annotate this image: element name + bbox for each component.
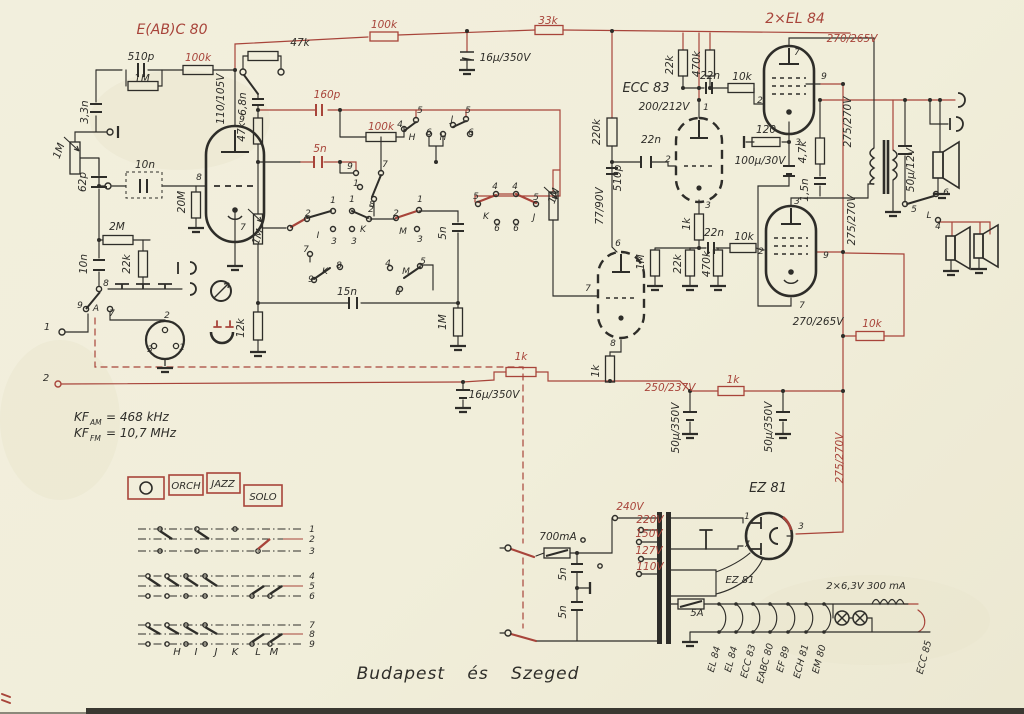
schematic-label: I [317, 231, 320, 241]
schematic-label: 220k [591, 118, 603, 145]
schematic-label: 7 [240, 223, 246, 233]
schematic-label: 1M [134, 73, 150, 85]
schematic-label: L [926, 211, 931, 221]
schematic-label: 5n [437, 226, 449, 239]
schematic-label: 8 [196, 173, 202, 183]
schematic-label: K [483, 212, 490, 222]
schematic-label: 6 [309, 592, 315, 602]
schematic-label: 1 [744, 512, 750, 522]
schematic-label: 12k [235, 317, 247, 337]
schematic-label: 2 [393, 209, 399, 219]
schematic-label: 9 [308, 275, 314, 285]
schematic-label: J [213, 647, 218, 658]
schematic-label: 16μ/350V [480, 52, 532, 64]
schematic-label: 2M [109, 221, 125, 233]
schematic-label: 1 [349, 195, 355, 205]
record-dot-icon [140, 482, 152, 494]
schematic-label: 8 [610, 339, 616, 349]
schematic-label: EABC 80 [755, 642, 776, 684]
schematic-label: K [360, 225, 367, 235]
schematic-label: 4 [309, 572, 315, 582]
schematic-label: 5n [557, 605, 569, 618]
schematic-label: 77/90V [594, 186, 606, 224]
schematic-label: 510p [612, 164, 624, 191]
schematic-label: J [531, 213, 536, 223]
schematic-label: 700mA [539, 531, 576, 543]
schematic-label: 1 [703, 103, 709, 113]
schematic-label: L [255, 647, 261, 658]
schematic-label: 220V [636, 514, 664, 526]
schematic-label: M [402, 267, 410, 277]
schematic-label: M [270, 647, 279, 658]
schematic-label: 22n [704, 227, 724, 239]
schematic-label: 6 [494, 224, 500, 234]
schematic-label: 2 [368, 205, 374, 215]
schematic-label: 1 [330, 196, 336, 206]
schematic-label: 5 [420, 257, 426, 267]
schematic-label: ECC 83 [622, 81, 669, 96]
magic-eye-symbol [211, 332, 233, 343]
tube-ecc83-upper [676, 118, 722, 202]
schematic-label: 2×EL 84 [765, 11, 825, 27]
preset-button-solo: SOLO [244, 485, 282, 506]
schematic-label: 10k [862, 318, 882, 330]
preset-button-jazz-label: JAZZ [209, 479, 236, 490]
schematic-caption: Budapest és Szeged [357, 664, 580, 684]
schematic-label: 270/265V [827, 33, 879, 45]
schematic-label: 9 [347, 162, 353, 172]
schematic-label: 9 [821, 72, 827, 82]
schematic-label: 10k [734, 231, 754, 243]
schematic-label: 4 [397, 120, 403, 130]
schematic-label: 9 [77, 301, 83, 311]
schematic-label: H [440, 133, 447, 143]
schematic-label: = 10,7 MHz [106, 426, 177, 440]
preset-button-orch: ORCH [169, 475, 203, 495]
schematic-label: 1k [590, 364, 602, 378]
schematic-label: 8 [336, 261, 342, 271]
schematic-label: 8 [103, 279, 109, 289]
schematic-label: ECC 83 [739, 643, 759, 679]
schematic-label: 62p [77, 172, 89, 192]
schematic-label: 100k [371, 19, 398, 31]
schematic-label: 1 [353, 179, 359, 189]
schematic-label: 22n [641, 134, 661, 146]
schematic-label: 7 [303, 245, 309, 255]
schematic-label: 47k [290, 37, 310, 49]
schematic-label: A [92, 304, 99, 314]
schematic-label: 20M [176, 191, 188, 213]
schematic-label: 2 [757, 96, 763, 106]
schematic-label: 3 [705, 201, 711, 211]
schematic-label: 110V [636, 561, 664, 573]
schematic-label: 110/105V [215, 73, 227, 125]
schematic-label: 9 [309, 640, 315, 650]
schematic-label: 1 [179, 343, 185, 353]
tube-ez81 [746, 513, 792, 559]
schematic-label: H [409, 133, 416, 143]
schematic-label: 6 [943, 188, 949, 198]
speaker-3 [974, 225, 998, 267]
schematic-label: 5 [465, 106, 471, 116]
schematic-label: = 468 kHz [106, 410, 170, 424]
schematic-label: K [232, 647, 240, 658]
tube-el84-1 [764, 46, 814, 134]
schematic-label: 150V [635, 528, 663, 540]
schematic-label: 2 [164, 311, 170, 321]
schematic-label: 16μ/350V [469, 389, 521, 401]
schematic-label: EL 84 [706, 645, 723, 673]
preset-button-orch-label: ORCH [171, 481, 201, 492]
schematic-label: 22k [121, 253, 133, 273]
schematic-label: EZ 81 [749, 481, 787, 496]
schematic-label: EF 89 [775, 645, 793, 674]
schematic-label: 120 [756, 124, 776, 136]
schematic-label: 22k [672, 253, 684, 273]
schematic-label: 1M [51, 142, 68, 161]
schematic-label: 2 [43, 373, 49, 384]
schematic-label: 50μ/12V [905, 147, 917, 192]
magnetics [657, 140, 998, 644]
schematic-label: 1,5n [799, 178, 811, 201]
schematic-label: 100μ/30V [735, 155, 787, 167]
preset-button-jazz: JAZZ [207, 473, 240, 493]
schematic-label: 6 [395, 288, 401, 298]
schematic-label: 270/265V [793, 316, 845, 328]
schematic-label: 2 [665, 155, 671, 165]
tube-el84-2 [766, 206, 816, 296]
schematic-label: 9 [823, 251, 829, 261]
schematic-label: 127V [635, 545, 663, 557]
schematic-label: 240V [616, 501, 644, 513]
schematic-label: 1M [250, 228, 267, 247]
schematic-label: 22k [664, 54, 676, 74]
schematic-label: 4 [385, 259, 391, 269]
schematic-label: 100k [185, 52, 212, 64]
schematic-label: KF [74, 410, 90, 424]
schematic-label: 50μ/350V [670, 402, 682, 454]
schematic-label: 1M [635, 254, 647, 270]
schematic-label: 10k [732, 71, 752, 83]
schematic-label: 7 [744, 540, 750, 550]
scan-edge [0, 708, 1024, 714]
schematic-label: 5 [911, 205, 917, 215]
schematic-page: ORCH JAZZ SOLO [0, 0, 1024, 714]
schematic-label: 1 [309, 525, 315, 535]
schematic-label: 50μ/350V [763, 401, 775, 453]
schematic-label: 4,7k [797, 140, 809, 164]
schematic-label: 22n [700, 70, 720, 82]
schematic-label: 6,8n [237, 92, 249, 115]
schematic-label: 3 [794, 197, 800, 207]
schematic-label: 2×6,3V 300 mA [826, 581, 906, 592]
preset-buttons: ORCH JAZZ SOLO [128, 473, 282, 506]
schematic-label: 4 [492, 182, 498, 192]
schematic-label: 160p [314, 89, 341, 101]
schematic-label: 275/270V [846, 194, 858, 246]
schematic-label: 7 [799, 301, 805, 311]
schematic-label: 2 [758, 247, 764, 257]
schematic-label: 10n [135, 159, 155, 171]
schematic-label: 3 [309, 547, 315, 557]
schematic-label: 1M [437, 314, 449, 330]
schematic-label: EZ 81 [725, 575, 754, 586]
schematic-label: 1 [44, 322, 50, 333]
schematic-label: 5 [533, 193, 539, 203]
schematic-label: 510p [128, 51, 155, 63]
schematic-label: 33k [538, 15, 558, 27]
schematic-label: 7 [109, 309, 115, 319]
schematic-label: 250/237V [645, 382, 697, 394]
schematic-label: 200/212V [639, 101, 691, 113]
schematic-label: 275/270V [834, 432, 846, 484]
schematic-label: 3 [798, 522, 804, 532]
schematic-label: 10n [78, 254, 90, 274]
schematic-label: 47k [236, 121, 248, 141]
schematic-label: 4 [935, 222, 941, 232]
schematic-label: 2 [309, 535, 315, 545]
schematic-label: EL 84 [723, 645, 740, 673]
schematic-label: 1k [681, 217, 693, 231]
schematic-label: 6 [426, 128, 432, 138]
schematic-label: 2 [305, 209, 311, 219]
meter-symbol [211, 281, 231, 301]
schematic-label: 1 [417, 195, 423, 205]
schematic-label: 1k [515, 351, 529, 363]
schematic-label: 6 [513, 224, 519, 234]
schematic-label: 3 [331, 237, 337, 247]
preset-button-solo-label: SOLO [249, 492, 276, 503]
schematic-label: 8 [309, 630, 315, 640]
schematic-label: 275/270V [842, 96, 854, 148]
schematic-label: 3 [351, 237, 357, 247]
schematic-label: 5 [417, 106, 423, 116]
schematic-label: 5A [690, 608, 703, 619]
schematic-label: 470k [701, 250, 713, 277]
schematic-label: 5 [473, 192, 479, 202]
schematic-label: I [195, 647, 198, 658]
schematic-label: H [173, 647, 181, 658]
schematic-label: E(AB)C 80 [137, 22, 208, 38]
schematic-label: FM [90, 434, 101, 443]
speaker-2 [946, 227, 970, 269]
schematic-label: 5 [309, 582, 315, 592]
schematic-label: 7 [585, 284, 591, 294]
schematic-label: J [449, 115, 454, 125]
switch-matrix [138, 527, 303, 646]
schematic-label: 5n [557, 567, 569, 580]
speaker-1 [933, 142, 959, 188]
schematic-label: 3,3n [79, 100, 91, 123]
schematic-svg: ORCH JAZZ SOLO [0, 0, 1024, 714]
schematic-label: 3 [147, 345, 153, 355]
schematic-label: 100k [368, 121, 395, 133]
schematic-label: 6 [615, 239, 621, 249]
schematic-label: 4 [512, 182, 518, 192]
schematic-label: 1k [727, 374, 741, 386]
schematic-label: M [399, 227, 407, 237]
schematic-label: AM [89, 418, 102, 427]
schematic-label: 6 [468, 128, 474, 138]
schematic-label: 7 [382, 160, 388, 170]
schematic-label: 15n [337, 286, 357, 298]
schematic-label: KF [74, 426, 90, 440]
schematic-label: 5n [313, 143, 326, 155]
schematic-label: 3 [417, 235, 423, 245]
schematic-label: 7 [794, 48, 800, 58]
preset-button-record [128, 477, 164, 499]
